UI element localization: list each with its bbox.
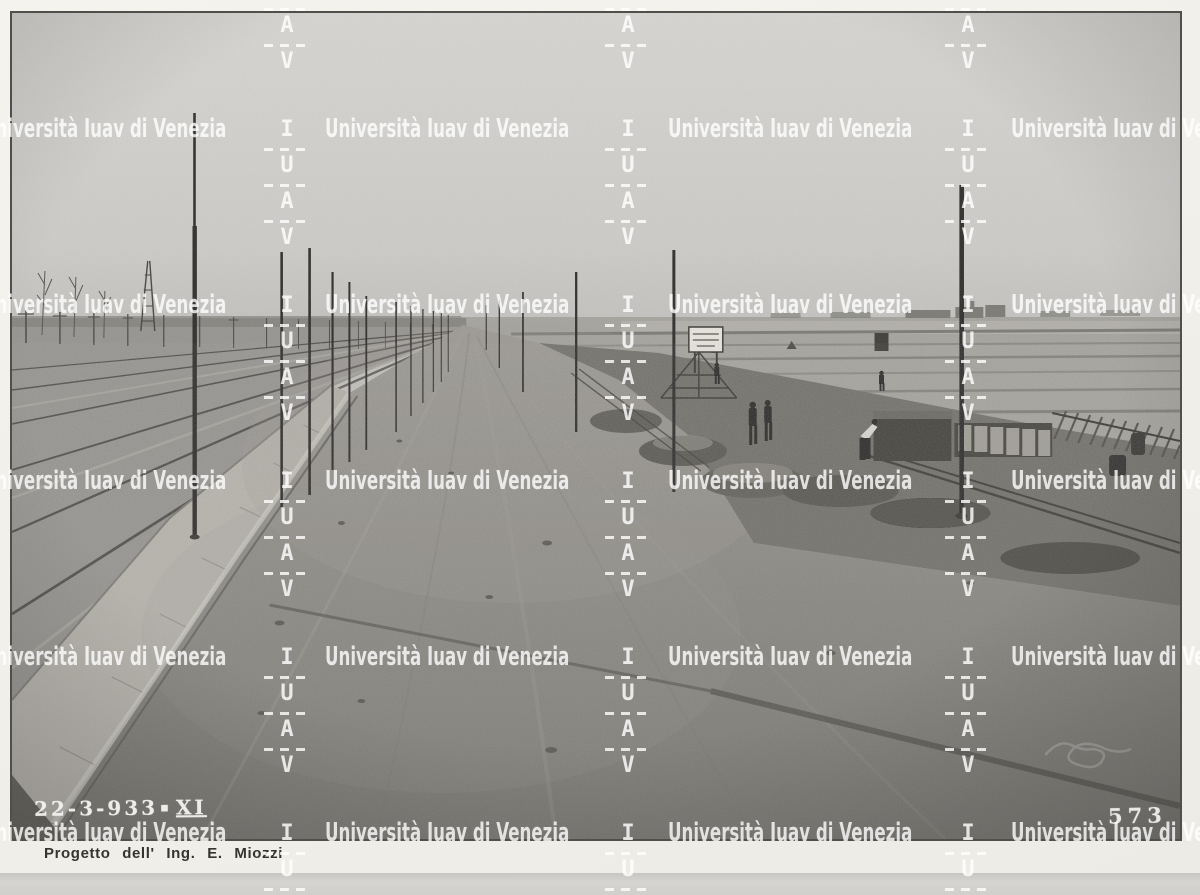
- photograph: 22-3-933▪XI 573: [10, 11, 1182, 841]
- photo-scene: [12, 13, 1180, 839]
- archive-number-stamp: 573: [1108, 802, 1167, 828]
- archive-number: 573: [1108, 802, 1167, 828]
- date-stamp: 22-3-933▪XI: [34, 795, 207, 821]
- date-stamp-era: XI: [176, 795, 207, 819]
- caption: Progetto dell' Ing. E. Miozzi: [44, 845, 283, 862]
- date-stamp-main: 22-3-933: [34, 796, 158, 821]
- date-stamp-separator: ▪: [160, 800, 172, 815]
- vignette: [12, 13, 1180, 839]
- photo-mat: 22-3-933▪XI 573 Progetto dell' Ing. E. M…: [0, 0, 1200, 873]
- desk-background: [0, 873, 1200, 895]
